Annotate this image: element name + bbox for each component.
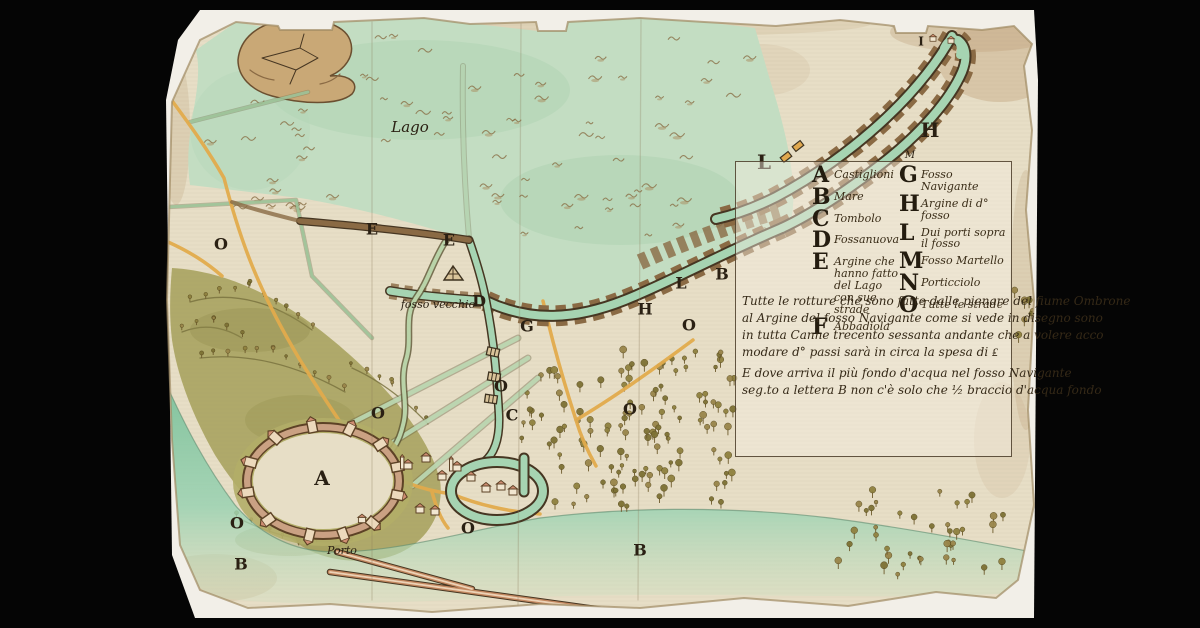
legend-label: Tombolo bbox=[834, 210, 900, 225]
manuscript-map-photo: Lagofosso vecchioPortoOEEDGHLBOOCOOAOBOB… bbox=[0, 0, 1200, 628]
legend-row: A Castiglioni bbox=[812, 166, 900, 186]
legend-label: Castiglioni bbox=[834, 166, 900, 181]
note-paragraph-1: Tutte le rotture che sono fatte dalle pi… bbox=[742, 293, 1008, 361]
legend-row: N Porticciolo bbox=[899, 274, 1011, 294]
note-line: in tutta Canne trecento sessanta andante… bbox=[742, 327, 1008, 344]
legend-label: Argine di d° fosso bbox=[921, 195, 1011, 222]
legend-label: Fossanuova bbox=[834, 231, 900, 246]
legend-row: L Dui porti sopra il fosso bbox=[899, 224, 1011, 251]
legend-letter: B bbox=[812, 188, 834, 208]
note-line: al Argine del fosso Navigante come si ve… bbox=[742, 310, 1008, 327]
note-line: Tutte le rotture che sono fatte dalle pi… bbox=[742, 293, 1008, 310]
note-line: E dove arriva il più fondo d'acqua nel f… bbox=[742, 365, 1008, 382]
legend-box: A Castiglioni B Mare C Tombolo D Fossanu… bbox=[735, 161, 1012, 457]
legend-row: G Fosso Navigante bbox=[899, 166, 1011, 193]
legend-label: Fosso Martello bbox=[921, 252, 1011, 267]
legend-letter: E bbox=[812, 253, 834, 273]
legend-label: Mare bbox=[834, 188, 900, 203]
legend-letter: A bbox=[812, 166, 834, 186]
legend-label: Fosso Navigante bbox=[921, 166, 1011, 193]
note-line: modare d° passi sarà in circa la spesa d… bbox=[742, 344, 1008, 361]
note-paragraph-2: E dove arriva il più fondo d'acqua nel f… bbox=[742, 365, 1008, 399]
legend-label: Dui porti sopra il fosso bbox=[921, 224, 1011, 251]
legend-row: H Argine di d° fosso bbox=[899, 195, 1011, 222]
legend-row: B Mare bbox=[812, 188, 900, 208]
legend-letter: N bbox=[899, 274, 921, 294]
note-line: seg.to a lettera B non c'è solo che ½ br… bbox=[742, 382, 1008, 399]
legend-label: Porticciolo bbox=[921, 274, 1011, 289]
legend-columns: A Castiglioni B Mare C Tombolo D Fossanu… bbox=[736, 166, 1011, 298]
legend-letter: L bbox=[899, 224, 921, 244]
legend-letter: G bbox=[899, 166, 921, 186]
legend-letter: H bbox=[899, 195, 921, 215]
